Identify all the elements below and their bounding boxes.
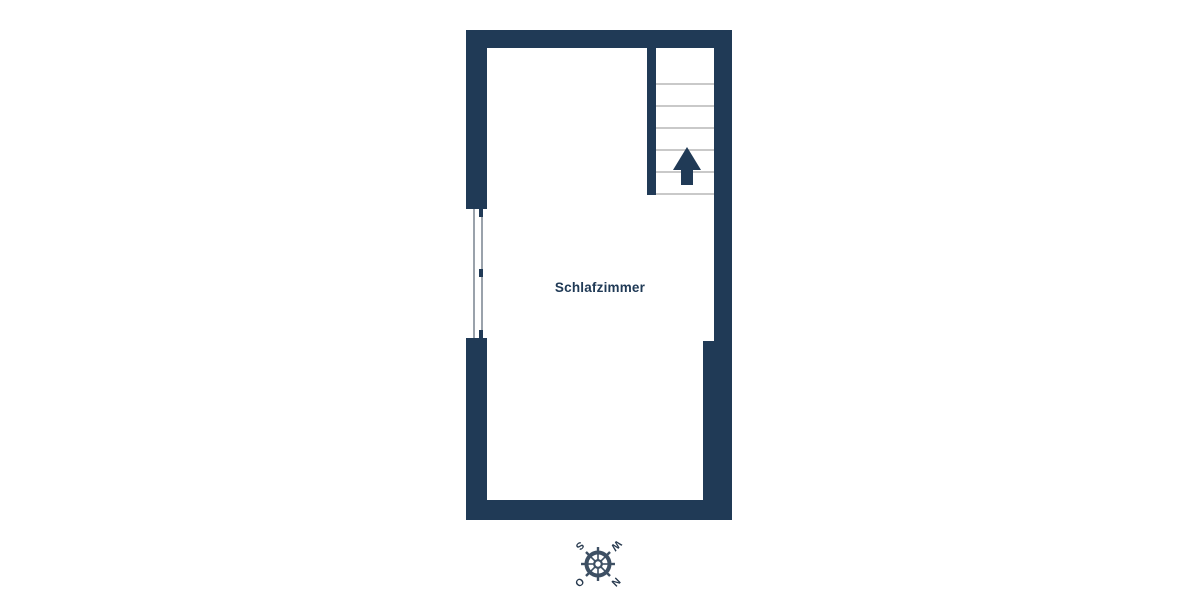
window-frame-line	[473, 209, 475, 338]
wall-left-lower	[466, 338, 487, 520]
wall-left-upper	[466, 30, 487, 209]
window-left	[472, 209, 484, 338]
compass-letter-north: N	[609, 575, 623, 589]
window-mullion	[479, 209, 483, 217]
window-mullion	[479, 330, 483, 338]
wall-top	[466, 30, 732, 48]
wall-stair-divider	[647, 48, 656, 195]
stair-tread-line	[656, 193, 714, 195]
wall-right-upper	[714, 30, 732, 341]
compass-letter-west: W	[608, 538, 624, 554]
compass-rotated-group: N O S W	[566, 532, 630, 596]
stairs-up-arrow-icon	[673, 147, 701, 185]
compass-letter-east: O	[572, 575, 586, 589]
window-mullion	[479, 269, 483, 277]
wall-right-lower	[703, 341, 732, 520]
room-label: Schlafzimmer	[500, 280, 700, 295]
compass-rose-icon: N O S W	[566, 532, 630, 596]
stair-tread-line	[656, 127, 714, 129]
wall-bottom	[466, 500, 732, 520]
compass-letter-south: S	[573, 539, 586, 552]
floorplan-canvas: Schlafzimmer	[0, 0, 1200, 600]
stair-tread-line	[656, 83, 714, 85]
stair-tread-line	[656, 105, 714, 107]
